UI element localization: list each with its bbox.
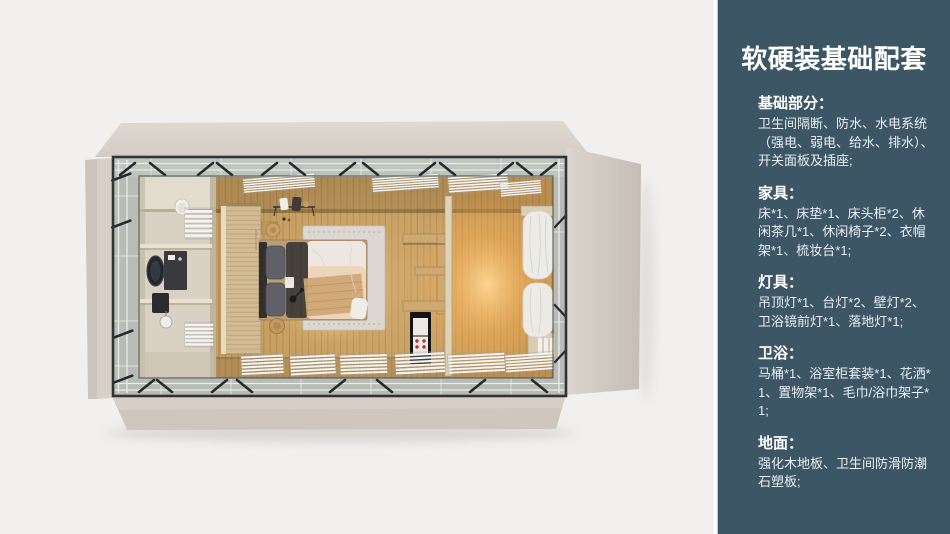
spec-section-basics: 基础部分： 卫生间隔断、防水、水电系统（强电、弱电、给水、排水）、开关面板及插座… — [758, 95, 934, 171]
bathroom-shelf-slats — [184, 207, 213, 239]
shelf-shadow — [403, 243, 447, 245]
section-body: 卫生间隔断、防水、水电系统（强电、弱电、给水、排水）、开关面板及插座; — [758, 115, 934, 171]
wardrobe — [221, 203, 261, 354]
section-heading: 灯具： — [758, 274, 934, 292]
room-render-canvas — [0, 0, 718, 534]
section-body: 吊顶灯*1、台灯*2、壁灯*2、卫浴镜前灯*1、落地灯*1; — [758, 294, 934, 331]
bathroom — [139, 177, 216, 378]
slide: 软硬装基础配套 基础部分： 卫生间隔断、防水、水电系统（强电、弱电、给水、排水）… — [0, 0, 950, 534]
room-topview-render — [0, 0, 718, 534]
curtain — [523, 211, 553, 279]
vanity-stool — [152, 293, 169, 313]
spec-section-bath: 卫浴： 马桶*1、浴室柜套装*1、花洒*1、置物架*1、毛巾/浴巾架子*1; — [758, 345, 934, 421]
spec-section-furniture: 家具： 床*1、床垫*1、床头柜*2、休闲茶几*1、休闲椅子*2、衣帽架*1、梳… — [758, 185, 934, 261]
vanity-counter — [164, 251, 187, 290]
section-body: 马桶*1、浴室柜套装*1、花洒*1、置物架*1、毛巾/浴巾架子*1; — [758, 365, 934, 421]
pillow — [266, 246, 285, 279]
section-heading: 家具： — [758, 185, 934, 203]
bed — [259, 240, 368, 320]
towel-rack-slats — [184, 322, 213, 348]
section-heading: 地面： — [758, 435, 934, 453]
foot-cushion — [350, 297, 369, 320]
divider-wall — [445, 196, 452, 376]
spec-section-lighting: 灯具： 吊顶灯*1、台灯*2、壁灯*2、卫浴镜前灯*1、落地灯*1; — [758, 274, 934, 331]
spec-section-floor: 地面： 强化木地板、卫生间防滑防潮石塑板; — [758, 435, 934, 492]
spec-sidebar: 软硬装基础配套 基础部分： 卫生间隔断、防水、水电系统（强电、弱电、给水、排水）… — [718, 0, 950, 534]
section-heading: 卫浴： — [758, 345, 934, 363]
section-heading: 基础部分： — [758, 95, 934, 113]
pillow — [266, 283, 285, 316]
shower-head — [160, 316, 172, 328]
curtain — [523, 283, 553, 337]
section-body: 强化木地板、卫生间防滑防潮石塑板; — [758, 455, 934, 492]
section-body: 床*1、床垫*1、床头柜*2、休闲茶几*1、休闲椅子*2、衣帽架*1、梳妆台*1… — [758, 205, 934, 261]
bathroom-shelf — [140, 244, 212, 248]
sidebar-title: 软硬装基础配套 — [734, 44, 934, 75]
